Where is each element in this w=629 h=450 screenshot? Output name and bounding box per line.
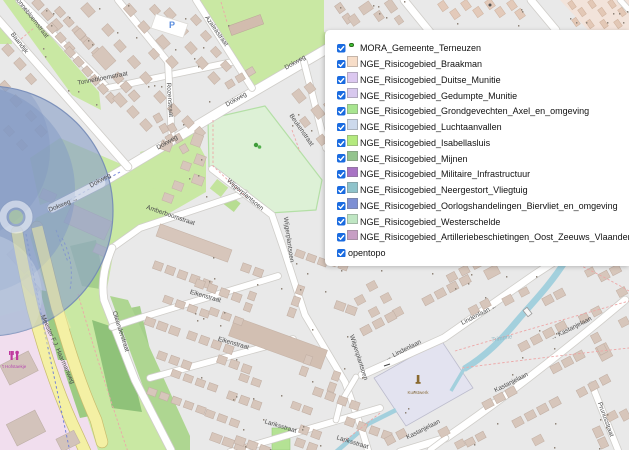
svg-text:'t Hofstaekje: 't Hofstaekje [2,364,27,369]
svg-text:Kunstwerk: Kunstwerk [407,390,429,395]
svg-text:P: P [169,20,175,30]
